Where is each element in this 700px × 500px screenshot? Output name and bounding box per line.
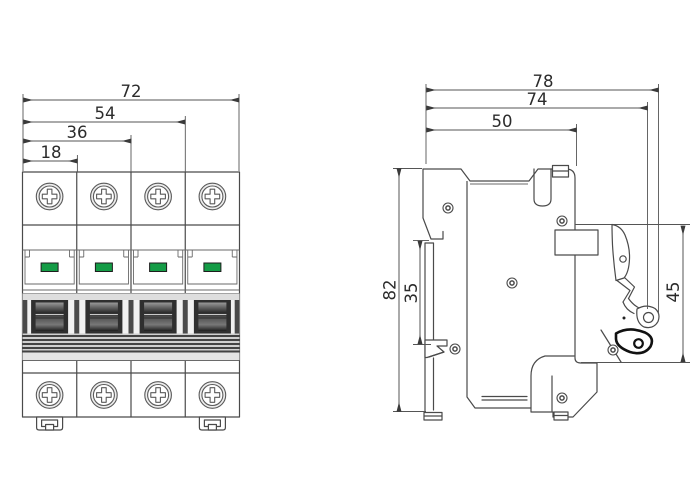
terminal-screw-icon: [91, 183, 118, 210]
toggle-handle[interactable]: [85, 300, 122, 334]
dim-label-35: 35: [402, 283, 421, 304]
status-indicator-window: [41, 263, 58, 272]
terminal-screw-icon: [199, 382, 226, 409]
status-indicator-window: [95, 263, 112, 272]
dim-label-82: 82: [381, 280, 400, 301]
drawing-canvas: 72 54 36 18: [0, 0, 700, 500]
front-view: [23, 172, 240, 430]
front-dimensions: 72 54 36 18: [23, 82, 239, 172]
rivet-icon: [557, 216, 567, 226]
side-view: [423, 166, 690, 421]
rivet-icon: [450, 344, 460, 354]
din-clip: [199, 417, 225, 430]
toggle-handle[interactable]: [31, 300, 68, 334]
rivet-icon: [507, 278, 517, 288]
din-rail-clip: [423, 218, 447, 420]
rivet-icon: [557, 393, 567, 403]
status-indicator-window: [150, 263, 167, 272]
dim-label-18: 18: [41, 143, 62, 162]
rivet-icon: [443, 203, 453, 213]
mcb-dimension-drawing: 72 54 36 18: [0, 0, 700, 500]
terminal-screw-icon: [199, 183, 226, 210]
dim-label-50: 50: [492, 112, 513, 131]
terminal-block: [555, 230, 598, 255]
toggle-handle[interactable]: [194, 300, 231, 334]
terminal-screw-icon: [145, 382, 172, 409]
status-indicator-window: [204, 263, 221, 272]
terminal-screw-icon: [145, 183, 172, 210]
terminal-screw-icon: [91, 382, 118, 409]
toggle-band: [23, 294, 240, 361]
dim-label-54: 54: [95, 104, 116, 123]
toggle-handle[interactable]: [140, 300, 177, 334]
dim-label-72: 72: [121, 82, 142, 101]
dim-label-78: 78: [533, 72, 554, 91]
terminal-screw-icon: [36, 183, 63, 210]
dim-label-36: 36: [67, 123, 88, 142]
din-clip: [37, 417, 63, 430]
dim-label-74: 74: [527, 90, 548, 109]
terminal-screw-icon: [36, 382, 63, 409]
dim-label-45: 45: [664, 282, 683, 303]
rivet-icon: [608, 345, 618, 355]
